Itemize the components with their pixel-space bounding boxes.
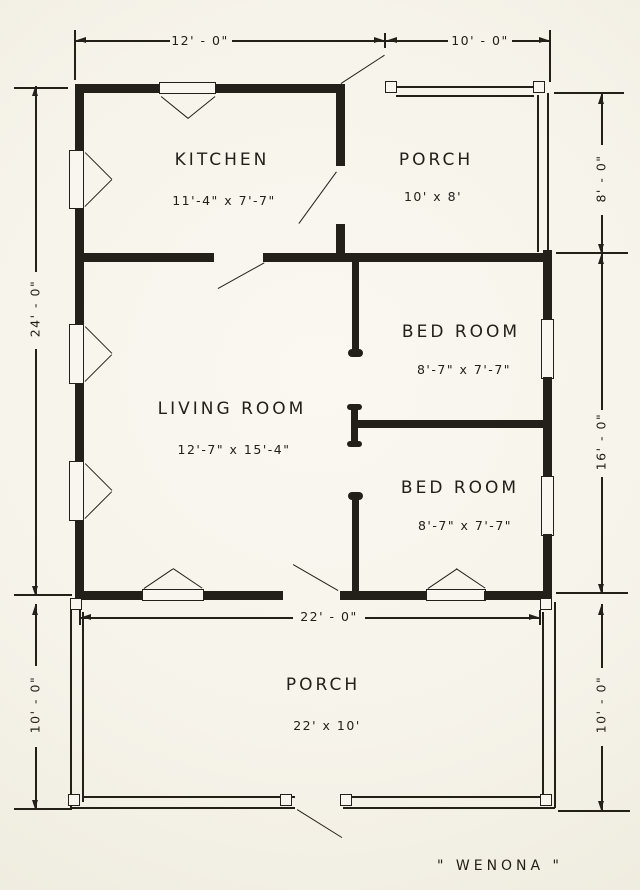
door-swing-kitchen-living xyxy=(218,262,265,289)
porch-post xyxy=(385,81,397,93)
porch-post xyxy=(280,794,292,806)
room-size-bedroom-2: 8'-7" x 7'-7" xyxy=(395,518,535,533)
dim-line-porch-1 xyxy=(80,617,293,619)
dim-arrow xyxy=(539,37,548,43)
window-glyph xyxy=(144,569,174,590)
porch-post xyxy=(70,598,82,610)
wall-top-b xyxy=(214,84,345,93)
porch-left-rail-inner xyxy=(82,612,84,802)
porch-bottom-rail-outer-l xyxy=(70,807,295,809)
window-living-left-2 xyxy=(69,461,84,521)
window-glyph xyxy=(85,463,113,491)
dim-arrow xyxy=(82,614,91,620)
dim-arrow xyxy=(32,606,38,615)
room-label-living-room: LIVING ROOM xyxy=(132,399,332,419)
room-size-porch-bottom: 22' x 10' xyxy=(272,718,382,733)
dim-line-porch-2 xyxy=(365,617,540,619)
window-glyph xyxy=(85,491,113,519)
porch-bottom-rail-inner-l xyxy=(82,796,295,798)
window-kitchen-top xyxy=(159,82,216,94)
dim-label-right-porch: 10' - 0" xyxy=(594,670,609,740)
room-label-porch-top: PORCH xyxy=(376,150,496,170)
dim-line-right-b2 xyxy=(601,477,603,593)
door-swing-front xyxy=(293,564,339,591)
wall-left-c xyxy=(75,383,84,463)
window-glyph xyxy=(161,96,189,119)
dim-ext-right-top xyxy=(554,92,624,94)
porch-post xyxy=(540,598,552,610)
dim-ext-right-mid2 xyxy=(556,592,628,594)
dim-ext-top-left xyxy=(74,30,76,80)
room-size-bedroom-1: 8'-7" x 7'-7" xyxy=(394,362,534,377)
dim-label-left-main: 24' - 0" xyxy=(28,271,43,347)
dim-label-right-top: 8' - 0" xyxy=(594,149,609,209)
plan-title: " WENONA " xyxy=(420,858,580,874)
dim-ext-right-bottom xyxy=(558,810,630,812)
porch-steps-leader xyxy=(297,809,343,838)
dim-ext-top-right xyxy=(549,30,551,82)
dim-tick-top-mid xyxy=(384,33,386,48)
window-bedroom2-bottom xyxy=(426,589,486,601)
room-size-porch-top: 10' x 8' xyxy=(383,189,483,204)
dim-arrow xyxy=(598,255,604,264)
dim-ext-left-top xyxy=(14,87,68,89)
dim-arrow xyxy=(388,37,397,43)
wall-right-b xyxy=(543,377,552,478)
dim-line-left-1 xyxy=(35,86,37,272)
dim-label-left-porch: 10' - 0" xyxy=(28,670,43,740)
dim-arrow xyxy=(529,614,538,620)
window-glyph xyxy=(85,326,113,354)
room-size-kitchen: 11'-4" x 7'-7" xyxy=(154,193,294,208)
window-glyph xyxy=(173,568,203,589)
window-living-bottom xyxy=(142,589,204,601)
dim-ext-left-mid xyxy=(14,594,72,596)
porch-right-rail-inner xyxy=(537,95,539,252)
porch-right-rail-outer xyxy=(547,93,549,252)
wall-end-cap xyxy=(348,349,363,357)
window-bedroom2-right xyxy=(541,476,554,536)
porch-top-rail-inner xyxy=(396,95,534,97)
dim-line-right-b1 xyxy=(601,253,603,410)
wall-bottom-b xyxy=(203,591,283,600)
dim-tick xyxy=(79,610,81,625)
dim-arrow xyxy=(77,37,86,43)
dim-arrow xyxy=(374,37,383,43)
wall-end-cap xyxy=(347,404,362,410)
dim-tick xyxy=(539,610,541,625)
door-swing-kitchen-porch xyxy=(298,172,337,225)
window-living-left-1 xyxy=(69,324,84,384)
dim-ext-left-bottom xyxy=(14,808,72,810)
dim-line-left-2 xyxy=(35,349,37,595)
room-label-bedroom-2: BED ROOM xyxy=(385,478,535,498)
dim-label-porch-width: 22' - 0" xyxy=(293,609,365,624)
wall-mid-b xyxy=(263,253,552,262)
room-size-living-room: 12'-7" x 15'-4" xyxy=(154,442,314,457)
porch-bottom-rail-outer-r xyxy=(343,807,555,809)
floor-plan-sheet: 12' - 0" 10' - 0" 24' - 0" 10' - 0" 8' -… xyxy=(0,0,640,890)
window-glyph xyxy=(456,568,486,589)
porch-post xyxy=(540,794,552,806)
wall-kitchen-porch-a xyxy=(336,84,345,166)
wall-right-c xyxy=(543,534,552,600)
wall-bottom-a xyxy=(75,591,144,600)
dim-line-top-2 xyxy=(232,40,448,42)
wall-left-b xyxy=(75,208,84,326)
dim-leader-top xyxy=(341,55,385,84)
room-label-bedroom-1: BED ROOM xyxy=(386,322,536,342)
room-label-porch-bottom: PORCH xyxy=(263,675,383,695)
porch-post xyxy=(533,81,545,93)
porch-right-rail-inner xyxy=(542,612,544,802)
dim-arrow xyxy=(598,606,604,615)
dim-arrow xyxy=(598,801,604,810)
porch-top-rail-outer xyxy=(396,86,534,88)
window-glyph xyxy=(188,96,216,119)
window-glyph xyxy=(85,354,113,382)
window-glyph xyxy=(428,569,458,590)
wall-mid-a xyxy=(75,253,214,262)
window-bedroom1-right xyxy=(541,319,554,379)
window-kitchen-left xyxy=(69,150,84,209)
dim-label-top-left: 12' - 0" xyxy=(168,33,232,48)
dim-label-right-middle: 16' - 0" xyxy=(594,409,609,475)
wall-top-a xyxy=(75,84,161,93)
wall-left-d xyxy=(75,520,84,600)
porch-bottom-rail-inner-r xyxy=(343,796,543,798)
dim-arrow xyxy=(598,95,604,104)
wall-end-cap xyxy=(347,441,362,447)
porch-post xyxy=(340,794,352,806)
porch-post xyxy=(68,794,80,806)
dim-line-top-1 xyxy=(75,40,170,42)
dim-ext-right-mid1 xyxy=(556,252,628,254)
porch-right-rail-outer xyxy=(554,602,556,808)
wall-left-a xyxy=(75,84,84,151)
wall-partition-bedroom2 xyxy=(352,495,359,600)
wall-bedroom-divider xyxy=(356,420,543,428)
wall-divider-end-bar xyxy=(351,407,358,444)
wall-partition-bedroom1 xyxy=(352,262,359,353)
dim-label-top-right: 10' - 0" xyxy=(448,33,512,48)
porch-left-rail-outer xyxy=(70,602,72,808)
window-glyph xyxy=(85,152,113,180)
room-label-kitchen: KITCHEN xyxy=(142,150,302,170)
window-glyph xyxy=(85,179,113,207)
